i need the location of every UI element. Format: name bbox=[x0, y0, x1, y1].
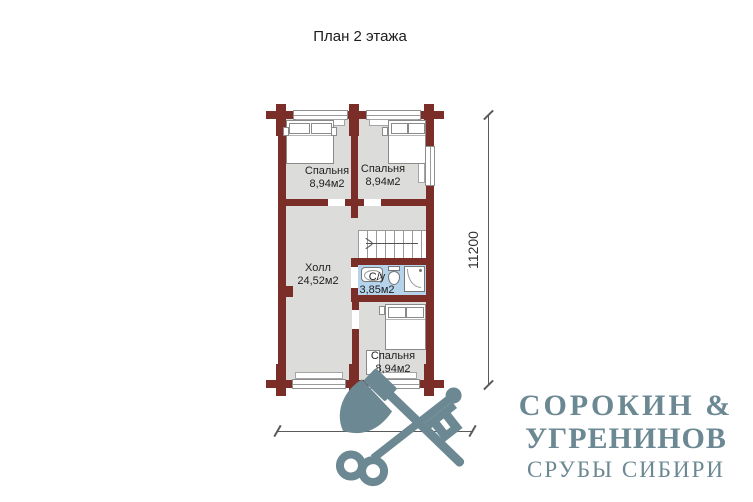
bed bbox=[388, 120, 426, 164]
logo-text: СОРОКИН & УГРЕНИНОВ СРУБЫ СИБИРИ bbox=[500, 389, 752, 485]
window-symbol bbox=[425, 146, 435, 186]
log-joint bbox=[266, 111, 286, 119]
dimension-label-vertical: 11200 bbox=[465, 220, 481, 280]
floor-plan-page: { "title": "План 2 этажа", "plan": { "ro… bbox=[0, 0, 753, 502]
door-opening bbox=[352, 310, 359, 329]
nightstand bbox=[382, 127, 388, 136]
wall-segment bbox=[278, 111, 286, 388]
room-label-hall: Холл24,52м2 bbox=[287, 262, 349, 288]
stair-direction-arrow bbox=[366, 243, 418, 244]
nightstand bbox=[283, 127, 289, 136]
logo-name-line2: УГРЕНИНОВ bbox=[500, 422, 752, 455]
shower-icon bbox=[404, 266, 425, 292]
wall-segment bbox=[381, 199, 426, 206]
logo-tagline: СРУБЫ СИБИРИ bbox=[500, 455, 752, 485]
room-label-bedroom1: Спальня8,94м2 bbox=[296, 165, 358, 191]
axe-and-key-crossed-icon bbox=[332, 366, 504, 502]
nightstand bbox=[331, 127, 337, 136]
staircase bbox=[358, 230, 426, 258]
log-joint bbox=[266, 380, 286, 388]
bed bbox=[286, 120, 334, 164]
wall-segment bbox=[286, 199, 328, 206]
room-label-bathroom: С/у3,85м2 bbox=[348, 271, 406, 297]
logo-name-line1: СОРОКИН & bbox=[500, 389, 752, 422]
wall-segment bbox=[351, 258, 426, 265]
log-joint bbox=[424, 111, 444, 119]
door-opening bbox=[328, 199, 345, 206]
door-opening bbox=[364, 199, 381, 206]
bed bbox=[385, 304, 426, 350]
room-label-bedroom2: Спальня8,94м2 bbox=[352, 163, 414, 189]
dimension-line-vertical bbox=[488, 115, 489, 385]
nightstand bbox=[379, 306, 385, 315]
